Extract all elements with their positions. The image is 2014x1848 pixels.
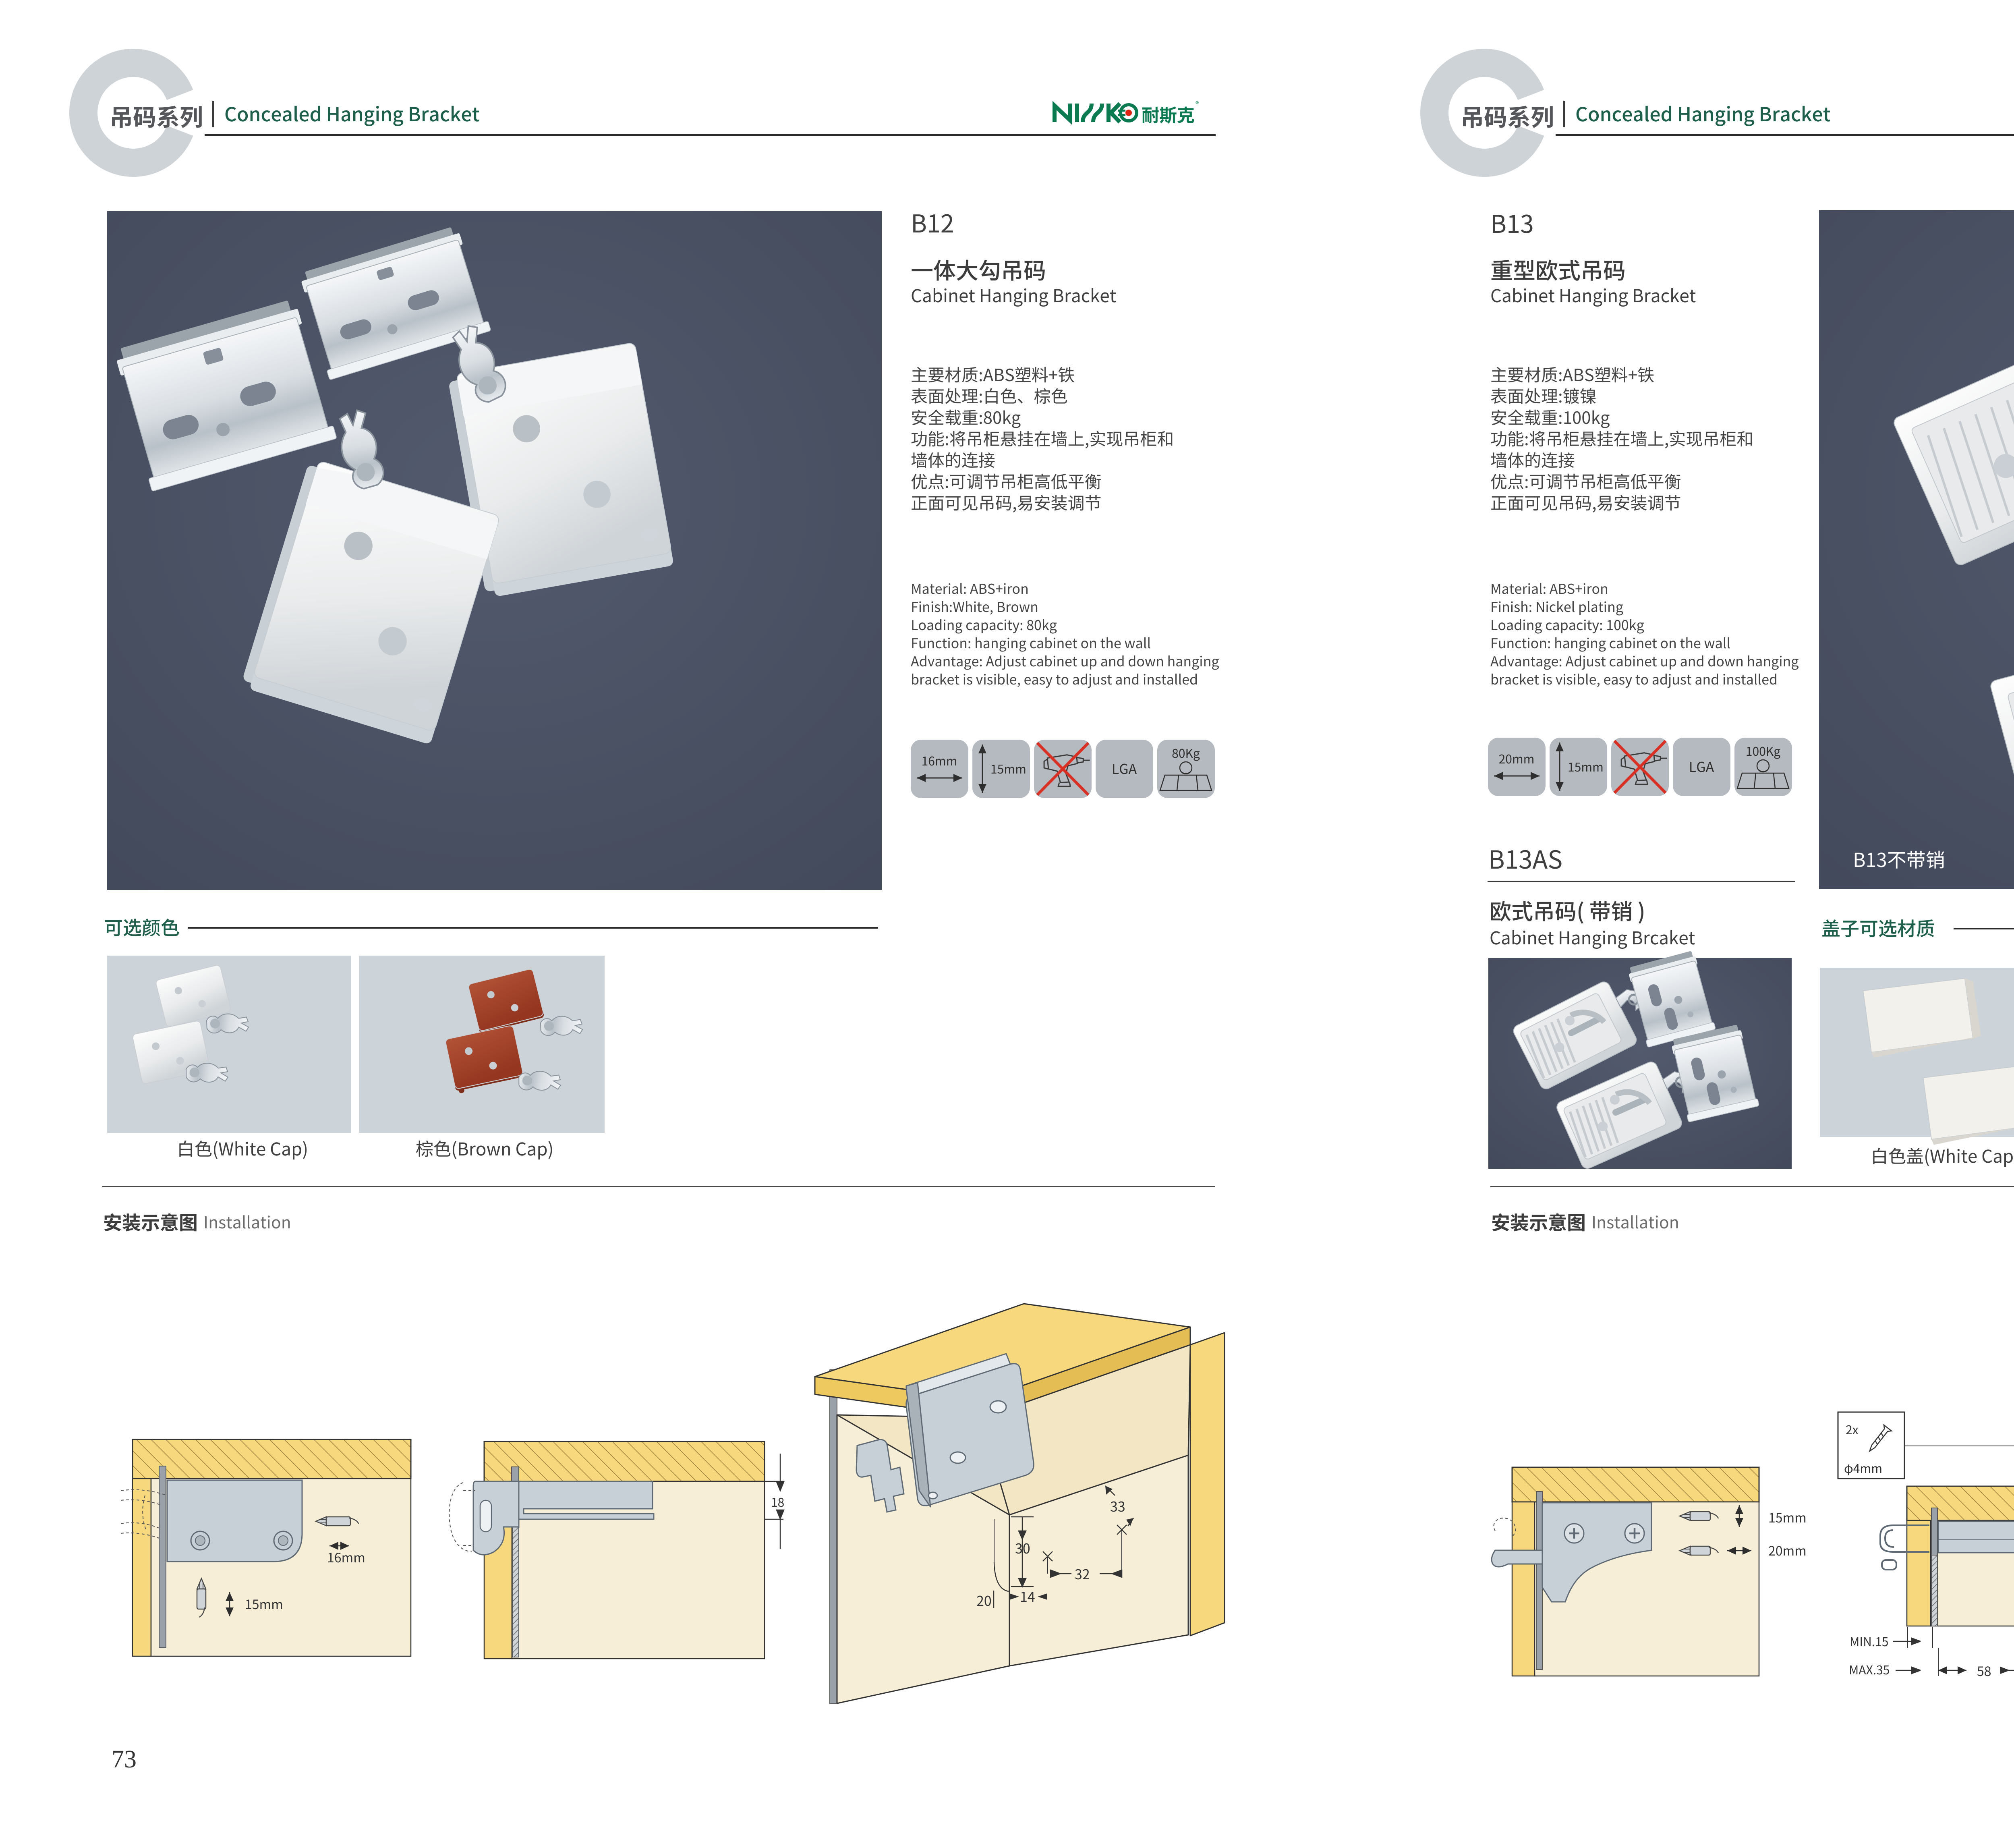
svg-text:73: 73 [112, 1746, 137, 1773]
